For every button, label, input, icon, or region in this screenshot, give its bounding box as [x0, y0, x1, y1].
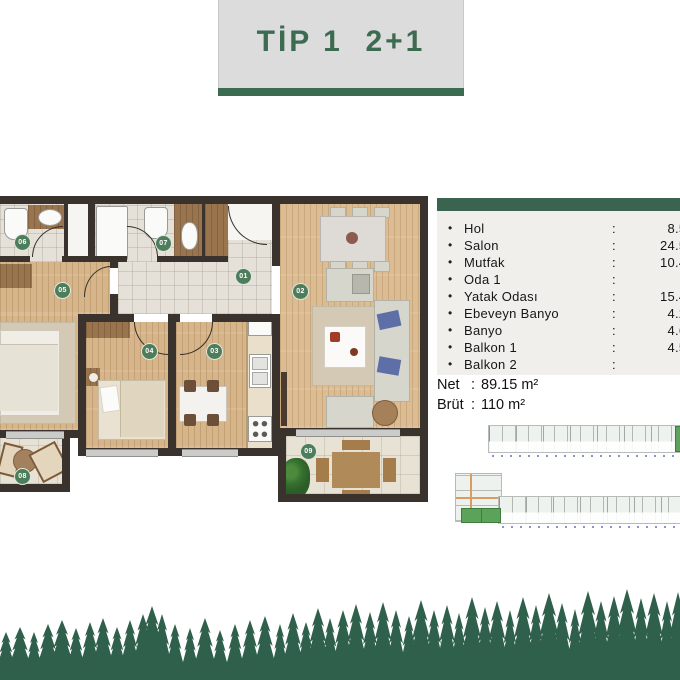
table-row: •Hol:8.50: [437, 220, 680, 237]
table-row: •Oda 1:10: [437, 271, 680, 288]
badge-mutfak: 03: [206, 343, 223, 360]
colon: :: [612, 221, 616, 236]
room-value: 8.50: [622, 221, 680, 236]
wall-segment: [157, 256, 228, 262]
site-key-ticks: [502, 526, 680, 528]
entry-wardrobe: [205, 204, 228, 262]
table-row: •Balkon 2:: [437, 356, 680, 373]
table-row: •Ebeveyn Banyo:4.20: [437, 305, 680, 322]
badge-label: 08: [18, 473, 26, 480]
site-key-ticks: [492, 455, 678, 457]
table-decor: [346, 232, 358, 244]
badge-label: 06: [18, 239, 26, 246]
balcony-dining-table: [332, 452, 380, 488]
badge-balkon1: 09: [300, 443, 317, 460]
bullet: •: [448, 221, 452, 235]
room-name: Hol: [464, 221, 484, 236]
colon: :: [612, 255, 616, 270]
room-name: Banyo: [464, 323, 502, 338]
bed-pillow: [99, 385, 120, 413]
wall-segment: [88, 204, 95, 262]
balcony-door: [296, 429, 400, 437]
coffee-table-decor: [350, 348, 358, 356]
wall-segment: [64, 204, 68, 262]
shower: [96, 206, 128, 260]
kitchen-sink-basin: [252, 372, 268, 385]
room-name: Balkon 2: [464, 357, 517, 372]
site-key-accent-line: [470, 474, 472, 508]
window: [86, 449, 158, 457]
wall-segment: [78, 322, 86, 448]
room-name: Yatak Odası: [464, 289, 538, 304]
bullet: •: [448, 323, 452, 337]
badge-hol: 01: [235, 268, 252, 285]
bed-blanket: [120, 381, 164, 437]
badge-ebeveyn-banyo: 06: [14, 234, 31, 251]
colon: :: [612, 272, 616, 287]
room-table: •Hol:8.50 •Salon:24.50 •Mutfak:10.40 •Od…: [437, 211, 680, 375]
table-row: •Banyo:4.60: [437, 322, 680, 339]
bullet: •: [448, 238, 452, 252]
colon: :: [612, 306, 616, 321]
wall-segment: [168, 322, 176, 448]
table-row: •Mutfak:10.40: [437, 254, 680, 271]
armchair: [326, 396, 374, 428]
room-name: Oda 1: [464, 272, 501, 287]
net-area-line: Net:89.15 m²: [437, 377, 538, 397]
wall-segment: [110, 262, 118, 268]
badge-label: 02: [296, 288, 304, 295]
room-name: Balkon 1: [464, 340, 517, 355]
wall-segment: [202, 204, 205, 262]
colon: :: [612, 340, 616, 355]
table-row: •Balkon 1:4.50: [437, 339, 680, 356]
brut-area-line: Brüt:110 m²: [437, 397, 538, 417]
wall-segment: [272, 204, 280, 266]
badge-label: 04: [145, 348, 153, 355]
table-row: •Yatak Odası:15.40: [437, 288, 680, 305]
wall-segment: [278, 436, 286, 502]
room-name: Salon: [464, 238, 499, 253]
bullet: •: [448, 306, 452, 320]
shaft-floor: [68, 204, 88, 262]
wall-segment: [78, 314, 134, 322]
balcony-chair: [383, 458, 396, 482]
bullet: •: [448, 289, 452, 303]
balcony-chair: [316, 458, 329, 482]
room-value: 4.50: [622, 340, 680, 355]
colon: :: [612, 357, 616, 372]
bed-blanket: [0, 344, 58, 411]
site-key-plan-lower-strip: [498, 496, 680, 524]
armchair: [352, 274, 370, 294]
badge-salon: 02: [292, 283, 309, 300]
balcony-door: [6, 431, 64, 439]
balcony-chair: [342, 440, 370, 450]
kitchen-chair: [207, 414, 219, 426]
badge-label: 07: [159, 240, 167, 247]
badge-balkon2: 08: [14, 468, 31, 485]
side-table: [372, 400, 398, 426]
room-value: 4.20: [622, 306, 680, 321]
page: TİP 1 2+1: [0, 0, 680, 680]
stove: [248, 416, 272, 442]
wall-segment: [212, 314, 272, 322]
site-key-highlight-lower: [481, 508, 501, 523]
net-label: Net: [437, 377, 471, 393]
badge-banyo: 07: [155, 235, 172, 252]
badge-oda1: 04: [141, 343, 158, 360]
room-value: 24.50: [622, 238, 680, 253]
colon: :: [471, 377, 481, 393]
bullet: •: [448, 340, 452, 354]
badge-yatak-odasi: 05: [54, 282, 71, 299]
kitchen-chair: [184, 380, 196, 392]
wall-segment: [110, 294, 118, 314]
table-row: •Salon:24.50: [437, 237, 680, 254]
forest-silhouette: [0, 580, 680, 680]
wall-segment: [272, 314, 280, 448]
site-key-accent-line: [456, 497, 499, 499]
site-key-highlight-lower: [461, 508, 482, 523]
wall-segment: [420, 436, 428, 502]
bullet: •: [448, 357, 452, 371]
wall-segment: [278, 494, 428, 502]
badge-label: 03: [210, 348, 218, 355]
badge-label: 05: [58, 287, 66, 294]
kitchen-chair: [207, 380, 219, 392]
room-value: 15.40: [622, 289, 680, 304]
wall-segment: [420, 196, 428, 436]
tv-panel: [281, 372, 287, 426]
room-value: 10: [622, 272, 680, 287]
net-value: 89.15 m²: [481, 377, 538, 393]
site-key-plan-upper: [488, 425, 680, 453]
brut-label: Brüt: [437, 397, 471, 413]
wall-segment: [0, 196, 428, 204]
badge-label: 01: [239, 273, 247, 280]
badge-label: 09: [304, 448, 312, 455]
wall-segment: [168, 314, 180, 322]
kitchen-chair: [184, 414, 196, 426]
dining-chair: [374, 261, 390, 272]
site-key-highlight-upper: [675, 426, 680, 452]
colon: :: [471, 397, 481, 413]
pedestal-sink: [181, 222, 198, 250]
area-summary: Net:89.15 m² Brüt:110 m²: [437, 377, 538, 417]
kitchen-sink-basin: [252, 357, 268, 370]
bullet: •: [448, 255, 452, 269]
room-value: 10.40: [622, 255, 680, 270]
room-value: 4.60: [622, 323, 680, 338]
colon: :: [612, 238, 616, 253]
window: [182, 449, 238, 457]
wall-segment: [0, 484, 70, 492]
wall-segment: [0, 256, 30, 262]
colon: :: [612, 289, 616, 304]
colon: :: [612, 323, 616, 338]
wardrobe: [86, 322, 130, 338]
sink: [38, 209, 62, 226]
bullet: •: [448, 272, 452, 286]
room-name: Mutfak: [464, 255, 505, 270]
room-name: Ebeveyn Banyo: [464, 306, 559, 321]
room-table-header-bar: [437, 198, 680, 211]
wardrobe: [0, 264, 32, 288]
coffee-table-decor: [330, 332, 340, 342]
brut-value: 110 m²: [481, 397, 525, 413]
